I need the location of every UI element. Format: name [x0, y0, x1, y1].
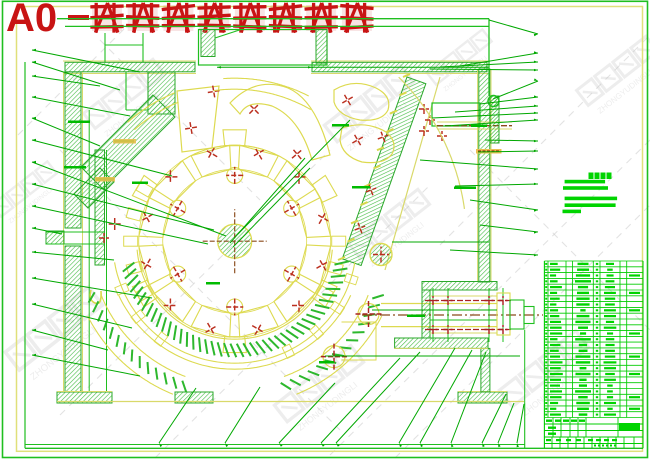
svg-text:A0: A0 — [6, 0, 57, 40]
